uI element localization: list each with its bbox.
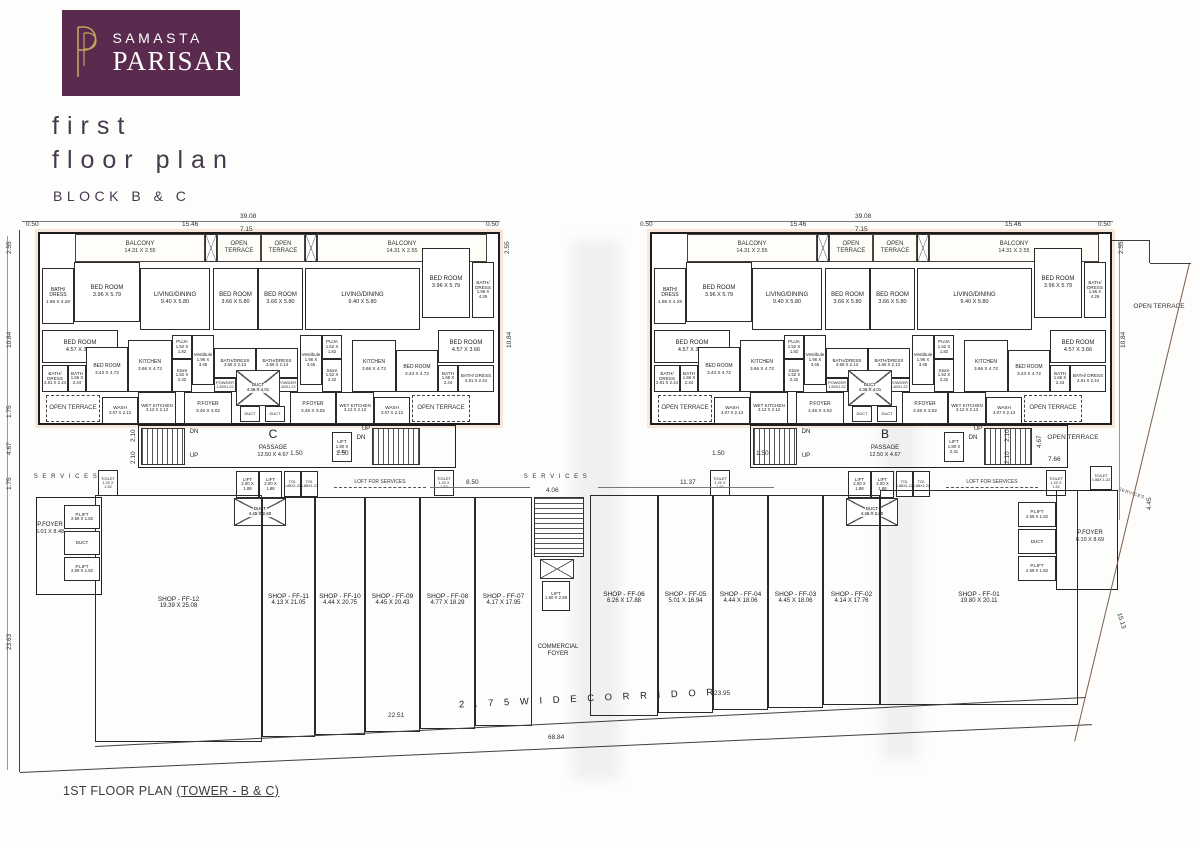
dimension-text: 3.46 X 3.02 [913,408,937,413]
dimension-text: 1.96 X 3.45 [805,358,825,368]
dim-4-67: 4.67 [1036,435,1043,448]
dimension-text: 3.46 X 3.02 [808,408,832,413]
dimension-text: 14.31 X 2.55 [998,248,1029,254]
dimension-text: 3.96 X 5.79 [93,292,121,298]
dimension-text: 3.96 X 5.79 [432,283,460,289]
dimension-text: 3.12 X 2.13 [758,408,780,413]
room-open-terrace: OPEN TERRACE [873,234,917,262]
dim-4-45: 4.45 [1146,497,1153,510]
room-c: C [253,427,293,441]
room-bed-room: BED ROOM3.66 X 5.80 [258,268,303,330]
room-p-lift: P.LIFT2.59 X 1.82 [64,505,100,529]
dim-1-50: 1.50 [712,450,725,457]
shop-ff-06: SHOP - FF-066.26 X 17.88 [590,495,658,716]
shop-ff-07-label: SHOP - FF-07 [483,593,524,600]
dimension-text: 2.59 X 1.82 [71,517,93,522]
p-foyer-label: P.FOYER [37,522,63,530]
living-dining-label: LIVING/DINING [154,292,196,299]
shop-ff-10-label: SHOP - FF-10 [319,593,360,600]
dim-7-15: 7.15 [855,226,868,233]
dimension-text: 3.46 X 3.02 [301,408,325,413]
dimension-text: 12.50 X 4.67 [257,452,288,459]
dimension-text: 3.66 X 5.80 [878,299,906,305]
shop-ff-11-label: SHOP - FF-11 [268,593,309,600]
room-open-terrace: OPEN TERRACE [829,234,873,262]
room-p-lift: P.LIFT2.59 X 1.82 [64,557,100,581]
balcony-label: BALCONY [388,241,417,248]
boundary-line [598,487,774,488]
room-bed-room: BED ROOM3.43 X 4.72 [1008,350,1050,392]
dimension-text: 4.13 X 21.05 [271,600,305,607]
room-bed-room: BED ROOM3.43 X 4.72 [698,347,740,392]
dn-label: DN [969,435,978,443]
dim-2-55: 2.55 [6,241,13,254]
bed-room-label: BED ROOM [1042,276,1075,283]
room-balcony: BALCONY14.31 X 2.55 [75,234,205,262]
dn-label: DN [190,429,199,437]
room-bed-room: BED ROOM3.66 X 5.80 [825,268,870,330]
boundary-line [430,487,530,488]
dimension-text: 4.45 X 18.06 [778,598,812,605]
dimension-text: 19.80 X 20.11 [961,598,998,605]
room-bath-dress: BATH/ DRESS2.81 X 2.44 [654,365,680,392]
room-duct: DUCT [240,406,260,422]
dimension-text: 14.31 X 2.55 [386,248,417,254]
dim-23-95: 23.95 [714,690,730,697]
room-store: Store1.52 X 2.32 [784,359,804,392]
room-store: Store1.52 X 2.32 [172,359,192,392]
shop-ff-02: SHOP - FF-024.14 X 17.76 [823,495,880,705]
dimension-text: 4.36 X 4.01 [246,388,270,393]
passage-label: PASSAGE [871,445,899,453]
dimension-text: 4.17 X 17.95 [486,600,520,607]
dimension-text: 3.96 X 5.79 [1044,283,1072,289]
room-store: Store1.52 X 2.32 [322,359,342,392]
room-duct: DUCT [64,531,100,555]
shop-ff-04-label: SHOP - FF-04 [720,591,761,598]
dimension-text: 3.66 X 4.72 [750,366,774,371]
dim-2-55: 2.55 [504,241,511,254]
bed-room-label: BED ROOM [1062,340,1095,347]
open-terrace-label: OPEN TERRACE [262,241,304,255]
shop-ff-02-label: SHOP - FF-02 [831,591,872,598]
room-duct: DUCT4.36 X 4.01 [848,370,892,406]
boundary-line [7,236,8,770]
room-loft-for-services: LOFT FOR SERVICES [946,478,1038,488]
balcony-label: BALCONY [126,241,155,248]
plan-caption-tower: (TOWER - B & C) [176,784,279,798]
balcony-label: BALCONY [1000,241,1029,248]
dimension-text: 4.57 X 3.66 [1064,347,1092,353]
dimension-text: 9.40 X 5.80 [773,299,801,305]
room-loft-for-services: LOFT FOR SERVICES [334,478,426,488]
room-living-dining: LIVING/DINING9.40 X 5.80 [917,268,1032,330]
dimension-text: 1.52 X 1.82 [173,345,191,355]
dimension-text: 12.50 X 4.67 [869,452,900,459]
room-open-terrace: OPEN TERRACE [1024,395,1082,422]
b-label: B [881,427,889,442]
room-bath: BATH1.66 X 2.44 [680,365,698,392]
bed-room-label: BED ROOM [676,340,709,347]
duct-shaft [540,559,574,579]
open-terrace-label: OPEN TERRACE [661,405,708,412]
dimension-text: 6.10 X 8.69 [1076,537,1104,544]
dimension-text: 5.01 X 16.94 [668,598,702,605]
loft-for-services-label: LOFT FOR SERVICES [354,479,405,485]
room-kitchen: KITCHEN3.66 X 4.72 [352,340,396,392]
dim-2-10: 2.10 [1004,429,1011,442]
dimension-text: 1.20 X 1.52 [99,481,117,489]
dimension-text: 1.60X1.22 [216,385,233,389]
dim-2-55: 2.55 [1118,241,1125,254]
boundary-line [1149,240,1150,263]
room-p-foyer: P.FOYER3.46 X 3.02 [184,392,232,424]
room-lift: LIFT2.00 X 1.88 [236,471,259,498]
dimension-text: 1.88X1.22 [284,484,301,488]
shop-ff-09: SHOP - FF-094.45 X 20.43 [365,497,420,732]
dim-0-50: 0.50 [1098,221,1111,228]
room-toilet: TOILET1.20 X 1.52 [434,470,454,496]
duct-shaft [205,234,217,262]
floor-plan: BALCONY14.31 X 2.55OPEN TERRACEOPEN TERR… [0,0,1200,848]
room-wet-kitchen: WET KITCHEN3.12 X 2.13 [948,392,986,424]
dim-10-84: 10.84 [6,332,13,348]
shop-ff-03: SHOP - FF-034.45 X 18.06 [768,495,823,708]
dimension-text: 2.00 X 1.88 [260,482,281,492]
dim-1-50: 1.50 [290,450,303,457]
dim-0-50: 0.50 [486,221,499,228]
room-kitchen: KITCHEN3.66 X 4.72 [128,340,172,392]
dimension-text: 1.96 X 4.29 [473,290,493,300]
shop-ff-01-label: SHOP - FF-01 [958,591,999,598]
dim-15-46: 15.46 [790,221,806,228]
room-powder: POWDER1.60X1.22 [214,378,236,392]
room-wash: WASH3.07 X 2.13 [102,397,138,424]
dim-39-08: 39.08 [240,213,256,220]
dim-1-50: 1.50 [756,450,769,457]
room-bath-dress: BATH/ DRESS2.81 X 2.44 [458,365,494,392]
dimension-text: 4.45 X 20.43 [375,600,409,607]
room-open-terrace: OPEN TERRACE [261,234,305,262]
dimension-text: 2.81 X 2.44 [465,379,487,384]
duct-label: DUCT [269,412,280,416]
dimension-text: 2.81 X 2.44 [1077,379,1099,384]
dimension-text: 3.43 X 4.72 [95,370,119,375]
room-open-terrace: OPEN TERRACE [412,395,470,422]
bed-room-label: BED ROOM [876,292,909,299]
dimension-text: 4.44 X 20.75 [323,600,357,607]
bath-dress-label: BATH/ DRESS [655,288,685,300]
dim-15-46: 15.46 [1005,221,1021,228]
room-p-lift: P.LIFT2.59 X 1.82 [1018,502,1056,527]
open-terrace-label: OPEN TERRACE [49,405,96,412]
living-dining-label: LIVING/DINING [766,292,808,299]
room-p-foyer: P.FOYER6.10 X 8.69 [1068,526,1112,548]
room-bed-room: BED ROOM3.96 X 5.79 [422,248,470,318]
room-p-foyer: P.FOYER3.46 X 3.02 [796,392,844,424]
duct-label: DUCT [1031,539,1044,544]
dimension-text: 1.52 X 2.32 [785,373,803,383]
dimension-text: 3.66 X 2.13 [878,363,900,368]
dimension-text: 3.07 X 2.13 [109,411,131,416]
room-p-foyer: P.FOYER6.01 X 8.48 [34,518,66,540]
duct-label: DUCT [881,412,892,416]
dimension-text: 1.52 X 1.82 [323,345,341,355]
room-bed-room: BED ROOM4.57 X 3.66 [438,330,494,363]
room-duct: DUCT4.36 X 4.01 [236,370,280,406]
dimension-text: 1.52 X 1.82 [785,345,803,355]
dimension-text: 3.66 X 5.80 [266,299,294,305]
dimension-text: 6.26 X 17.88 [607,598,641,605]
dimension-text: 1.88X1.22 [913,484,930,488]
room-toi: TOI.1.88X1.22 [301,471,318,497]
dimension-text: 1.88X1.22 [301,484,318,488]
dimension-text: 1.60X1.22 [890,385,907,389]
room-dn: DN [353,435,369,443]
room-commercial-foyer: COMMERCIAL FOYER [528,640,588,662]
living-dining-label: LIVING/DINING [953,292,995,299]
boundary-line [22,221,500,222]
dim-15-46: 15.46 [182,221,198,228]
dimension-text: 1.96 X 4.29 [46,299,70,304]
room-toi: TOI.1.88X1.22 [284,471,301,497]
duct-label: DUCT [856,412,867,416]
dim-1-75: 1.75 [6,405,13,418]
up-label: UP [974,426,982,434]
duct-shaft [305,234,317,262]
dim-68-84: 68.84 [548,734,564,741]
shop-ff-12: SHOP - FF-1219.39 X 25.08 [95,495,262,742]
boundary-line [1119,242,1120,520]
room-open-terrace: OPEN TERRACE [658,395,712,422]
dimension-text: 1.52 X 2.32 [323,373,341,383]
dimension-text: 1.96 X 3.45 [193,358,213,368]
dim-1-75: 1.75 [6,477,13,490]
dimension-text: 1.66 X 2.44 [69,376,85,386]
room-p-lift: P.LIFT2.59 X 1.82 [1018,556,1056,581]
room-living-dining: LIVING/DINING9.40 X 5.80 [752,268,822,330]
dim-4-67: 4.67 [6,442,13,455]
shop-ff-05: SHOP - FF-055.01 X 16.94 [658,495,713,713]
bed-room-label: BED ROOM [91,285,124,292]
room-puja: PUJA1.52 X 1.82 [322,335,342,359]
room-vestibule: Vestibule1.96 X 3.45 [912,335,934,385]
room-puja: PUJA1.52 X 1.82 [172,335,192,359]
room-duct: DUCT [265,406,285,422]
room-up: UP [186,453,202,461]
open-terrace-label: OPEN TERRACE [417,405,464,412]
dim-2-10: 2.10 [130,429,137,442]
room-dn: DN [798,429,814,437]
dimension-text: 1.66 X 2.44 [439,376,457,386]
room-kitchen: KITCHEN3.66 X 4.72 [740,340,784,392]
dimension-text: 3.66 X 2.13 [836,363,858,368]
dimension-text: 2.59 X 1.82 [1026,515,1048,520]
room-living-dining: LIVING/DINING9.40 X 5.80 [140,268,210,330]
up-label: UP [802,453,810,461]
room-dn: DN [965,435,981,443]
duct-shaft [817,234,829,262]
dim-0-50: 0.50 [26,221,39,228]
dimension-text: 3.07 X 2.13 [721,411,743,416]
room-lift: LIFT2.00 X 1.88 [259,471,282,498]
dimension-text: 3.66 X 5.80 [221,299,249,305]
room-duct: DUCT [1018,529,1056,554]
room-wet-kitchen: WET KITCHEN3.12 X 2.13 [336,392,374,424]
room-open-terrace: OPEN TERRACE [1040,427,1106,449]
dim-22-51: 22.51 [388,712,404,719]
dimension-text: 1.66 X 2.44 [1051,376,1069,386]
dimension-text: 3.66 X 4.72 [974,366,998,371]
dimension-text: 6.01 X 8.48 [36,529,64,536]
dimension-text: 2.00 X 1.88 [237,482,258,492]
commercial-foyer-label: COMMERCIAL FOYER [528,644,588,659]
room-wet-kitchen: WET KITCHEN3.12 X 2.13 [750,392,788,424]
dn-label: DN [802,429,811,437]
room-bed-room: BED ROOM3.43 X 4.72 [86,347,128,392]
dimension-text: 1.80 X 2.59 [545,596,567,601]
boundary-line [19,230,20,772]
dimension-text: 3.12 X 2.13 [956,408,978,413]
room-wash: WASH3.07 X 2.13 [714,397,750,424]
dimension-text: 9.40 X 5.80 [960,299,988,305]
room-passage: PASSAGE12.50 X 4.67 [850,442,920,462]
staircase [534,497,584,557]
s-e-r-v-i-c-e-s-label: S E R V I C E S [34,474,99,482]
dim-11-37: 11.37 [680,479,696,486]
shop-ff-12-label: SHOP - FF-12 [158,596,199,603]
room-lift: LIFT1.80 X 2.59 [542,581,570,611]
room-dn: DN [186,429,202,437]
dimension-text: 9.40 X 5.80 [161,299,189,305]
dimension-text: 1.96 X 3.45 [913,358,933,368]
open-terrace-label: OPEN TERRACE [874,241,916,255]
dimension-text: 3.12 X 2.13 [146,408,168,413]
dimension-text: 2.00 X 1.88 [849,482,870,492]
open-terrace-label: OPEN TERRACE [1047,434,1098,442]
room-lift: LIFT2.00 X 1.88 [848,471,871,498]
shop-ff-09-label: SHOP - FF-09 [372,593,413,600]
staircase [141,428,185,465]
room-store: Store1.52 X 2.32 [934,359,954,392]
room-toilet: TOILET1.20 X 1.52 [710,470,730,496]
room-puja: PUJA1.52 X 1.82 [934,335,954,359]
room-lift: LIFT1.80 X 2.31 [944,432,964,462]
bed-room-label: BED ROOM [430,276,463,283]
shop-ff-06-label: SHOP - FF-06 [603,591,644,598]
room-p-foyer: P.FOYER3.46 X 3.02 [290,392,336,424]
dim-1-50: 1.50 [336,450,349,457]
dim-10-84: 10.84 [506,332,513,348]
staircase [753,428,797,465]
room-vestibule: Vestibule1.96 X 3.45 [804,335,826,385]
dimension-text: 1.52 X 2.32 [935,373,953,383]
room-bed-room: BED ROOM3.96 X 5.79 [74,262,140,322]
bed-room-label: BED ROOM [831,292,864,299]
boundary-line [645,221,1113,222]
room-wet-kitchen: WET KITCHEN3.12 X 2.13 [138,392,176,424]
shop-ff-10: SHOP - FF-104.44 X 20.75 [315,497,365,735]
dimension-text: 3.66 X 2.13 [266,363,288,368]
shop-ff-11: SHOP - FF-114.13 X 21.05 [262,497,315,737]
dimension-text: 9.40 X 5.80 [348,299,376,305]
room-bath-dress: BATH/ DRESS1.96 X 4.29 [1084,262,1106,318]
room-s-e-r-v-i-c-e-s: S E R V I C E S [518,473,594,482]
dimension-text: 4.14 X 17.76 [834,598,868,605]
shop-ff-04: SHOP - FF-044.44 X 18.06 [713,495,768,710]
room-vestibule: Vestibule1.96 X 3.45 [300,335,322,385]
passage-label: PASSAGE [259,445,287,453]
bed-room-label: BED ROOM [450,340,483,347]
room-bath-dress: BATH/ DRESS1.96 X 4.29 [42,268,74,324]
room-wash: WASH3.07 X 2.13 [986,397,1022,424]
room-bed-room: BED ROOM3.96 X 5.79 [1034,248,1082,318]
balcony-label: BALCONY [738,241,767,248]
bed-room-label: BED ROOM [264,292,297,299]
shop-ff-07: SHOP - FF-074.17 X 17.95 [475,497,532,726]
room-bath: BATH1.66 X 2.44 [438,365,458,392]
dim-8-50: 8.50 [466,479,479,486]
dimension-text: 2.59 X 1.82 [1026,569,1048,574]
dim-39-08: 39.08 [855,213,871,220]
dimension-text: 1.60X1.22 [828,385,845,389]
dimension-text: 3.66 X 4.72 [362,366,386,371]
room-duct: DUCT [877,406,897,422]
room-bed-room: BED ROOM3.66 X 5.80 [870,268,915,330]
bed-room-label: BED ROOM [703,285,736,292]
room-puja: PUJA1.52 X 1.82 [784,335,804,359]
c-label: C [269,427,278,442]
dimension-text: 1.60X1.22 [278,385,295,389]
room-toilet: TOILET1.88X 1.22 [1090,466,1112,490]
dimension-text: 3.43 X 4.72 [405,371,429,376]
dimension-text: 1.96 X 3.45 [301,358,321,368]
room-up: UP [798,453,814,461]
dimension-text: 4.44 X 18.06 [723,598,757,605]
open-terrace-label: OPEN TERRACE [830,241,872,255]
dn-label: DN [357,435,366,443]
dim-2-10: 2.10 [1004,451,1011,464]
bath-dress-label: BATH/ DRESS [43,288,73,300]
dimension-text: 1.52 X 2.32 [173,373,191,383]
room-powder: POWDER1.60X1.22 [826,378,848,392]
open-terrace-label: OPEN TERRACE [218,241,260,255]
bed-room-label: BED ROOM [64,340,97,347]
dimension-text: 3.96 X 5.79 [705,292,733,298]
dimension-text: 3.43 X 4.72 [707,370,731,375]
room-bath-dress: BATH/ DRESS1.96 X 4.29 [472,262,494,318]
up-label: UP [190,453,198,461]
dim-7-66: 7.66 [1048,456,1061,463]
room-b: B [865,427,905,441]
plan-caption: 1ST FLOOR PLAN (TOWER - B & C) [63,784,279,798]
dimension-text: 4.77 X 18.29 [430,600,464,607]
dim-2-10: 2.10 [130,451,137,464]
page: SAMASTA PARISAR first floor plan BLOCK B… [0,0,1200,848]
dimension-text: 1.96 X 4.29 [658,299,682,304]
dimension-text: 2.59 X 1.82 [71,569,93,574]
dimension-text: 1.80 X 2.31 [945,445,963,455]
dimension-text: 3.07 X 2.13 [993,411,1015,416]
room-s-e-r-v-i-c-e-s: S E R V I C E S [28,473,104,482]
room-open-terrace: OPEN TERRACE [217,234,261,262]
room-bath: BATH1.66 X 2.44 [68,365,86,392]
room-balcony: BALCONY14.31 X 2.55 [687,234,817,262]
boundary-line [1150,263,1191,264]
dimension-text: 4.57 X 3.66 [452,347,480,353]
duct-label: DUCT [76,540,89,545]
dimension-text: 1.96 X 4.29 [1085,290,1105,300]
